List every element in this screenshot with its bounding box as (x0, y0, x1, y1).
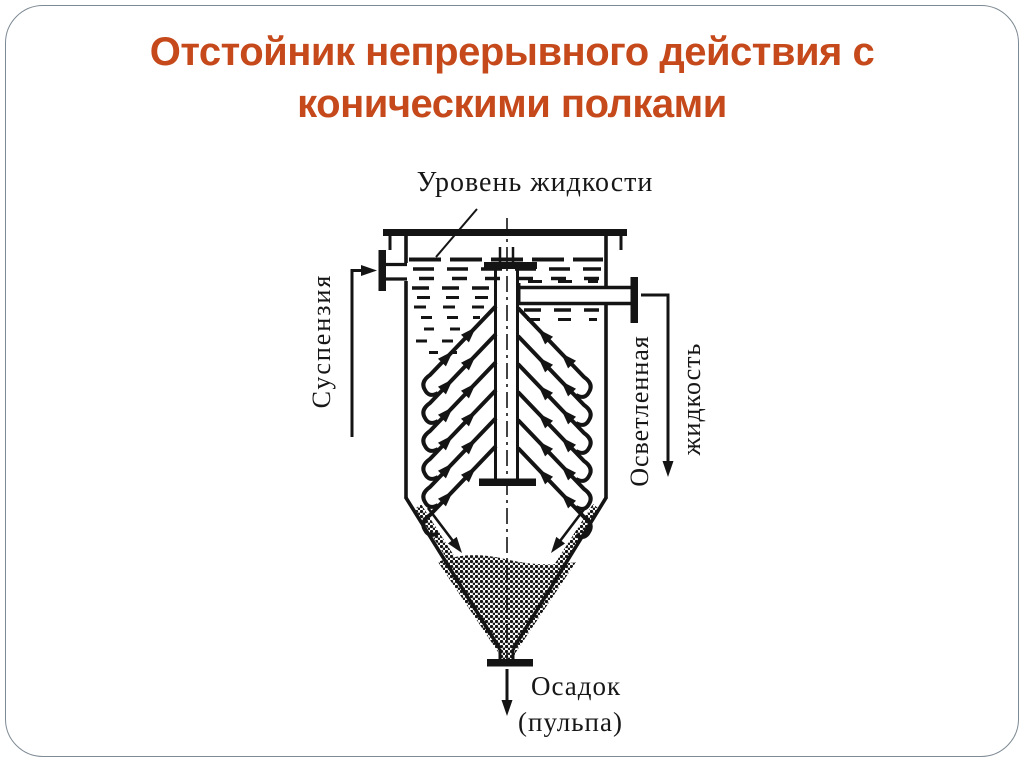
feed-pipe-foot (479, 479, 536, 487)
slide: Отстойник непрерывного действия с кониче… (0, 0, 1024, 767)
liquid-surface-dashes (409, 260, 603, 353)
suspension-inlet (352, 250, 407, 437)
clarified-flow-arrow (641, 295, 668, 464)
conical-shelves-left (423, 306, 496, 535)
tank-top-rim (383, 229, 627, 250)
shelf-flow-arrows-right (534, 325, 576, 508)
suspension-flow-arrow (352, 271, 363, 438)
sediment-outlet-arrow (502, 669, 513, 716)
shelf-flow-arrows-left (438, 323, 480, 506)
settler-diagram (0, 0, 1024, 767)
outlet-flange (631, 277, 639, 323)
inlet-flange (379, 250, 387, 291)
clarified-outlet (517, 277, 674, 477)
conical-shelves-right (518, 308, 591, 537)
